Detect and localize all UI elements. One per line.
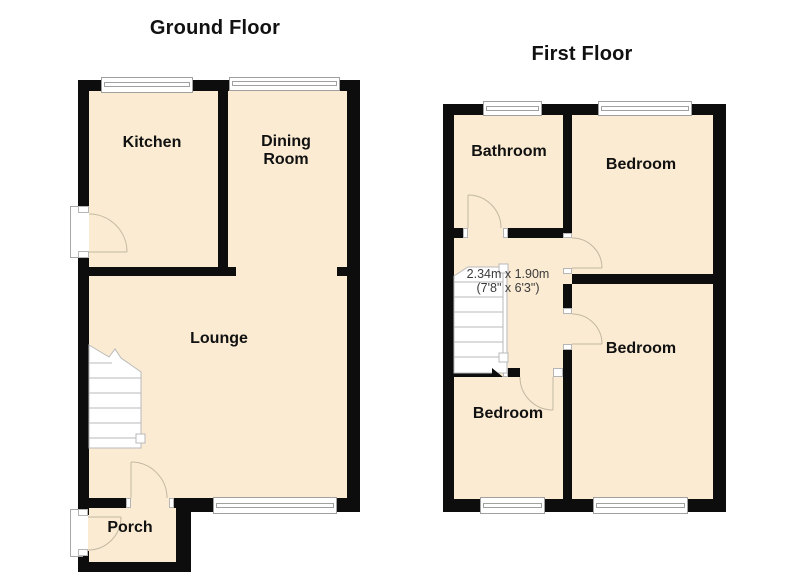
door-jamb: [126, 498, 131, 508]
wall: [508, 228, 563, 238]
window-pane: [601, 106, 689, 111]
door-jamb: [78, 206, 89, 213]
kitchen-window: [101, 77, 193, 93]
door-jamb: [78, 549, 88, 556]
wall: [89, 498, 126, 508]
wall: [563, 350, 572, 499]
wall: [193, 80, 230, 91]
door-jamb: [563, 268, 572, 274]
wall: [454, 228, 463, 238]
door-jamb: [78, 509, 88, 516]
bedroom-bottom-label: Bedroom: [473, 405, 543, 423]
door-opening: [78, 213, 89, 251]
first-floor-title: First Floor: [531, 43, 632, 66]
bedroom-top-label: Bedroom: [606, 156, 676, 174]
wall: [713, 104, 726, 512]
door-opening: [78, 516, 88, 549]
wall: [563, 115, 572, 233]
door-jamb: [463, 228, 468, 238]
door-jamb: [563, 344, 572, 350]
wall: [176, 498, 191, 572]
wall: [688, 499, 726, 512]
dining-room-window: [229, 77, 340, 91]
landing-dimension-metric: 2.34m x 1.90m: [467, 268, 550, 282]
wall: [572, 274, 713, 284]
kitchen-label: Kitchen: [123, 134, 182, 152]
door-jamb: [563, 308, 572, 314]
wall: [191, 498, 213, 512]
wall: [347, 80, 360, 512]
wall: [443, 499, 480, 512]
lounge-label: Lounge: [190, 330, 248, 348]
bedroom-window: [598, 101, 692, 116]
bedroom-middle-label: Bedroom: [606, 340, 676, 358]
wall: [454, 368, 492, 377]
wall: [78, 252, 89, 515]
wall: [563, 284, 572, 308]
floor-plan: Ground Floor First Floor Kitchen Dining …: [0, 0, 800, 582]
door-jamb: [553, 368, 563, 377]
door-jamb: [503, 228, 508, 238]
landing-dimension-imperial: (7'8" x 6'3"): [477, 282, 540, 296]
wall: [692, 104, 726, 115]
wall: [545, 499, 593, 512]
wall: [337, 267, 347, 276]
wall: [443, 104, 454, 512]
door-jamb: [169, 498, 174, 508]
bathroom-window: [483, 101, 542, 116]
wall: [542, 104, 598, 115]
window-pane: [232, 81, 337, 86]
wall: [508, 368, 520, 377]
window-pane: [596, 503, 685, 508]
wall: [337, 498, 360, 512]
porch-label: Porch: [107, 519, 152, 537]
door-jamb: [563, 233, 572, 238]
lounge-window: [213, 497, 337, 514]
window-pane: [486, 106, 539, 111]
bathroom-label: Bathroom: [471, 143, 547, 161]
window-pane: [104, 82, 190, 87]
wall: [89, 267, 236, 276]
dining-room-label: Dining Room: [250, 133, 322, 170]
bedroom-window: [593, 497, 688, 514]
ground-floor-title: Ground Floor: [150, 17, 280, 40]
window-pane: [483, 503, 542, 508]
wall: [78, 80, 89, 212]
wall: [78, 80, 102, 91]
wall: [78, 562, 191, 572]
door-jamb: [78, 251, 89, 258]
window-pane: [216, 503, 334, 508]
wall: [443, 104, 483, 115]
door-jamb: [503, 368, 508, 377]
wall: [218, 91, 228, 276]
bedroom-window: [480, 497, 545, 514]
first-floor-area: [443, 104, 726, 512]
